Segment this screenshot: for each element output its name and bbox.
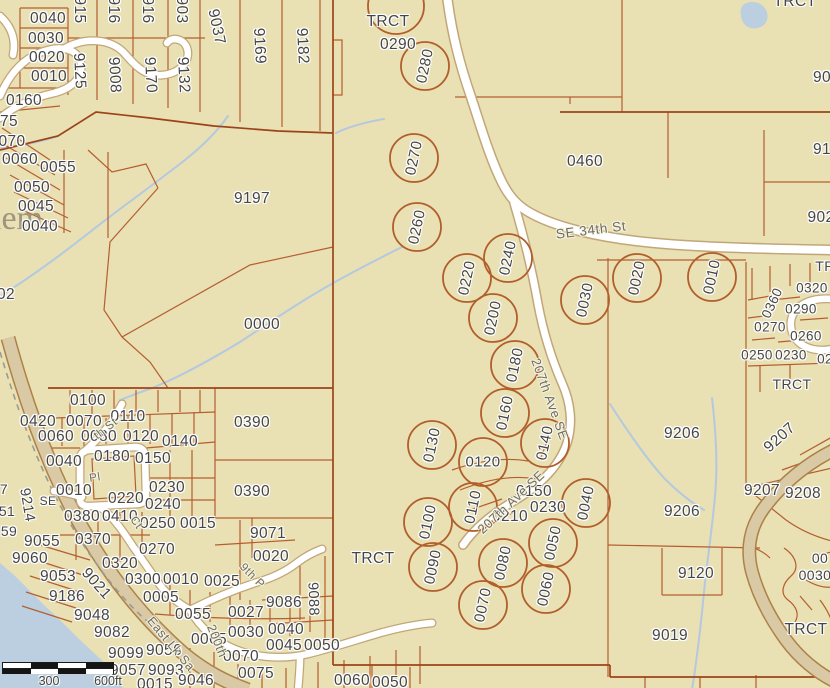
parcel-label: 903 xyxy=(172,0,190,24)
parcel-label: 0030 xyxy=(228,624,264,642)
parcel-label: 0000 xyxy=(244,316,280,334)
parcel-label: 0045 xyxy=(266,637,302,655)
map-viewport[interactable]: lem 004000300020001001607507000600055005… xyxy=(0,0,830,688)
parcel-label: 0150 xyxy=(135,450,171,468)
parcel-label: 9182 xyxy=(292,28,312,65)
parcel-label: 0040 xyxy=(30,10,66,28)
parcel-label: 00 xyxy=(812,550,828,566)
parcel-label: 0045 xyxy=(18,198,54,216)
parcel-label: 0460 xyxy=(567,153,603,171)
parcel-label: 9082 xyxy=(94,624,130,642)
parcel-label: 0270 xyxy=(139,541,175,559)
parcel-label: 0140 xyxy=(162,433,198,451)
parcel-label: 9132 xyxy=(173,57,193,94)
parcel-label: 0050 xyxy=(14,179,50,197)
parcel-label: 0040 xyxy=(46,453,82,471)
parcel-label: 9060 xyxy=(12,550,48,568)
parcel-label: 0050 xyxy=(372,674,408,688)
parcel-label: 0180 xyxy=(94,448,130,466)
parcel-label: 0230 xyxy=(775,348,807,363)
parcel-label: 915 xyxy=(70,0,88,24)
parcel-label: 0290 xyxy=(785,302,817,317)
parcel-label: 90 xyxy=(813,69,830,87)
parcel-label: 0250 xyxy=(140,515,176,533)
parcel-label: 0010 xyxy=(56,482,92,500)
parcel-label: 0027 xyxy=(228,604,264,622)
parcel-label: 0055 xyxy=(40,159,76,177)
parcel-label: 9046 xyxy=(178,672,214,688)
parcel-label: 02 xyxy=(0,286,15,304)
parcel-label: 9048 xyxy=(74,607,110,625)
parcel-label: TRCT xyxy=(352,550,395,568)
parcel-label: 0380 xyxy=(64,508,100,526)
parcel-label: 0060 xyxy=(38,428,74,446)
parcel-label: 0075 xyxy=(238,665,274,683)
parcel-label: 0005 xyxy=(143,589,179,607)
parcel-label: 0320 xyxy=(796,281,828,296)
parcel-label: 0015 xyxy=(180,515,216,533)
parcel-label: 0370 xyxy=(75,531,111,549)
pond xyxy=(741,2,768,28)
scale-bar-row-top xyxy=(2,662,114,668)
street-label: Pl xyxy=(89,471,102,484)
parcel-label: 9206 xyxy=(664,503,700,521)
parcel-label: 0060 xyxy=(2,151,38,169)
parcel-label: 0260 xyxy=(790,329,822,344)
parcel-label: 0220 xyxy=(108,490,144,508)
parcel-label: 9186 xyxy=(49,588,85,606)
parcel-label: TRCT xyxy=(367,13,410,31)
scale-label-600: 600ft xyxy=(86,674,130,688)
parcel-label: 902 xyxy=(807,209,830,227)
parcel-label: 0025 xyxy=(204,573,240,591)
parcel-label: 0300 xyxy=(125,571,161,589)
parcel-label: 59 xyxy=(1,523,17,539)
parcel-label: 0010 xyxy=(163,571,199,589)
parcel-label: 0270 xyxy=(754,320,786,335)
parcel-label: 0240 xyxy=(145,496,181,514)
parcel-label: 0020 xyxy=(253,548,289,566)
parcel-label: 0390 xyxy=(234,483,270,501)
parcel-label: 9197 xyxy=(234,190,270,208)
parcel-label: 51 xyxy=(0,503,15,519)
parcel-label: 9099 xyxy=(108,645,144,663)
parcel-label: 02 xyxy=(817,352,830,367)
parcel-label: 9071 xyxy=(250,525,286,543)
parcel-label: TRCT xyxy=(773,376,812,392)
parcel-label: 0120 xyxy=(123,428,159,446)
parcel-label: 0055 xyxy=(175,606,211,624)
parcel-label: 9086 xyxy=(266,594,302,612)
parcel-label: 0230 xyxy=(530,499,566,517)
parcel-label: 9088 xyxy=(304,582,321,616)
parcel-label: 0020 xyxy=(29,49,65,67)
parcel-label: 0160 xyxy=(6,92,42,110)
parcel-label: 0030 xyxy=(28,30,64,48)
scale-label-300: 300 xyxy=(32,674,66,688)
parcel-label: 7 xyxy=(0,481,8,497)
parcel-label: 0010 xyxy=(31,68,67,86)
parcel-label: 0250 xyxy=(741,348,773,363)
parcel-label: 916 xyxy=(138,0,156,24)
parcel-label: 9055 xyxy=(24,533,60,551)
parcel-label: 0100 xyxy=(70,392,106,410)
parcel-label: TRCT xyxy=(774,0,817,11)
parcel-label: 9053 xyxy=(40,568,76,586)
parcel-label: 9125 xyxy=(69,53,89,90)
parcel-label: 0050 xyxy=(304,637,340,655)
parcel-label: 91 xyxy=(813,141,830,159)
parcel-label: SE xyxy=(40,494,57,508)
parcel-label: 9207 xyxy=(744,482,780,500)
parcel-label: 0060 xyxy=(334,672,370,688)
parcel-label: 9169 xyxy=(249,28,269,65)
parcel-label: 9120 xyxy=(678,565,714,583)
parcel-label: 0040 xyxy=(22,218,58,236)
parcel-label: 9019 xyxy=(652,627,688,645)
scale-bar: 300 600ft xyxy=(2,662,114,688)
parcel-label: 0015 xyxy=(137,676,173,688)
parcel-label: 9206 xyxy=(664,425,700,443)
parcel-label: 916 xyxy=(104,0,122,24)
parcel-label: 9008 xyxy=(104,57,124,94)
parcel-label: 9208 xyxy=(785,485,821,503)
parcel-label: 0390 xyxy=(234,414,270,432)
circled-lot-label: 0120 xyxy=(466,454,501,471)
parcel-label: 0230 xyxy=(149,479,185,497)
parcel-label: 0030 xyxy=(799,567,830,583)
parcel-label: 0290 xyxy=(380,36,416,54)
parcel-label: 9170 xyxy=(140,57,160,94)
parcel-label: TRCT xyxy=(785,621,828,639)
parcel-label: 070 xyxy=(0,133,26,151)
parcel-label: 75 xyxy=(0,113,18,131)
parcel-label: TR xyxy=(815,258,830,274)
